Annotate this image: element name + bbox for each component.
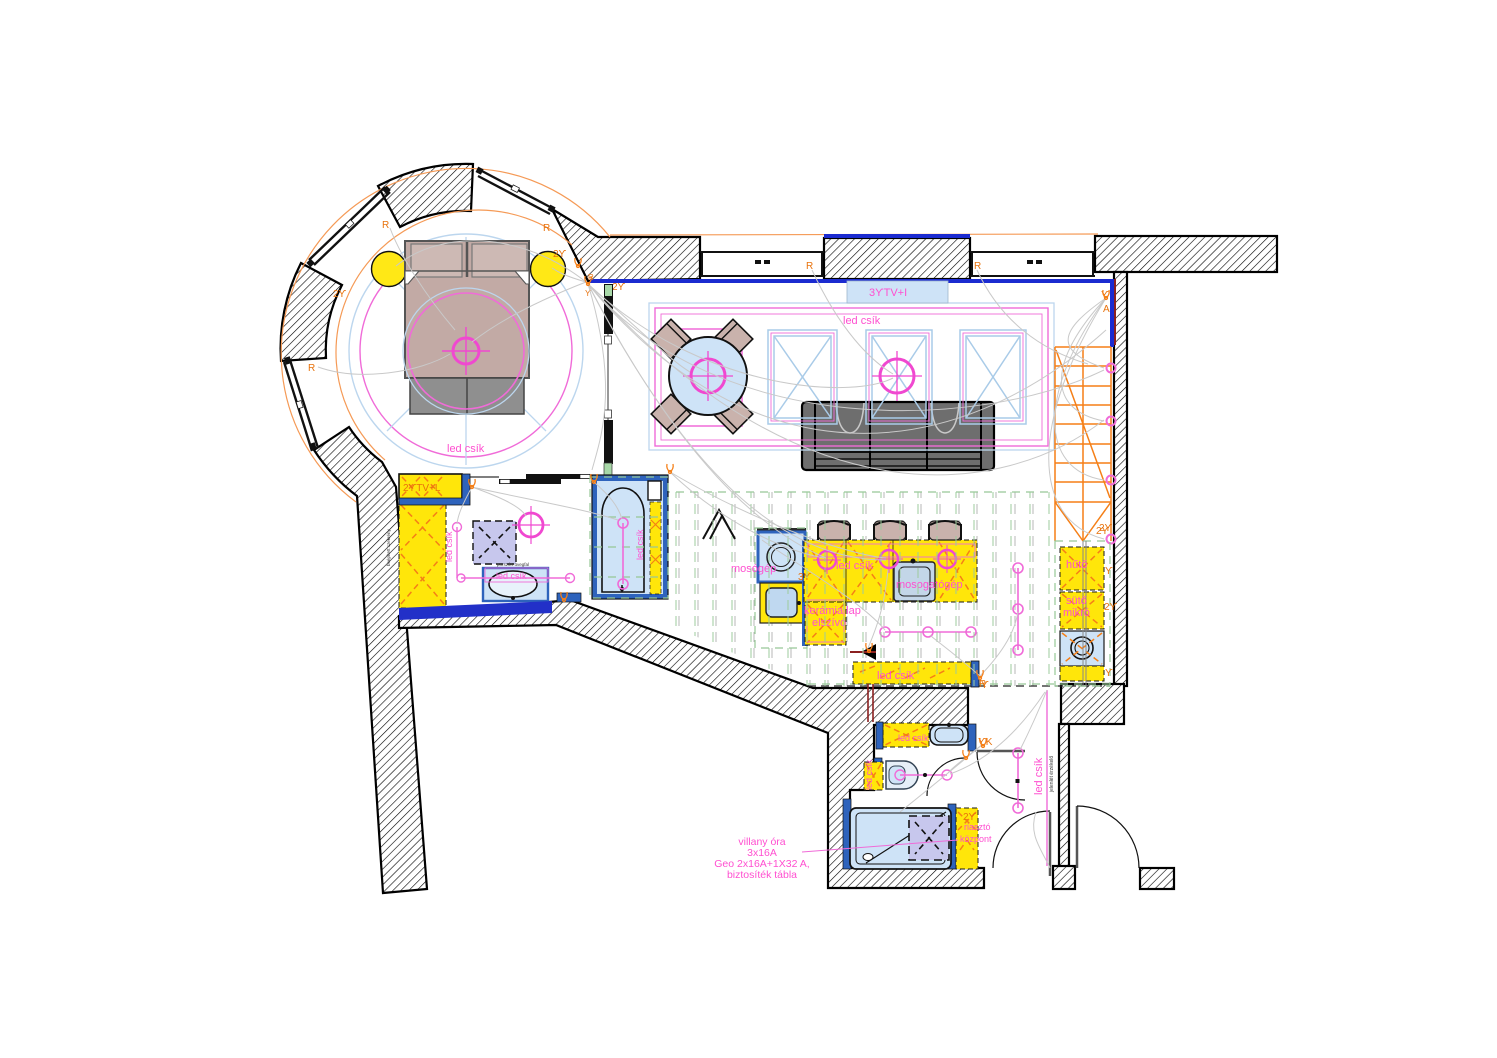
- svg-text:2ϒ: 2ϒ: [553, 249, 567, 260]
- svg-text:led csík: led csík: [843, 315, 881, 327]
- svg-text:R: R: [543, 223, 550, 234]
- svg-text:led csík: led csík: [864, 759, 874, 790]
- svg-text:porszórt üvegfal: porszórt üvegfal: [497, 562, 529, 567]
- svg-text:led csík: led csík: [1033, 757, 1045, 795]
- svg-text:A: A: [1103, 304, 1110, 315]
- svg-text:hűtő: hűtő: [1066, 559, 1087, 571]
- svg-text:3ϒ: 3ϒ: [798, 572, 812, 583]
- svg-text:2ϒ: 2ϒ: [1104, 602, 1118, 613]
- svg-text:led csík: led csík: [836, 560, 874, 572]
- svg-text:ϒ: ϒ: [981, 680, 989, 691]
- svg-text:beépített szekrény: beépített szekrény: [386, 528, 391, 566]
- svg-text:led csík: led csík: [496, 571, 527, 581]
- svg-text:R: R: [382, 220, 389, 231]
- svg-text:ϒ: ϒ: [1105, 566, 1113, 577]
- svg-text:R: R: [308, 363, 315, 374]
- svg-text:2ϒ: 2ϒ: [963, 812, 977, 823]
- svg-text:ϒ: ϒ: [1105, 668, 1113, 679]
- svg-text:kerámia lap: kerámia lap: [804, 605, 861, 617]
- svg-text:led csík: led csík: [635, 529, 645, 560]
- svg-text:biztosíték tábla: biztosíték tábla: [727, 869, 797, 881]
- svg-text:mikró: mikró: [1063, 607, 1090, 619]
- svg-text:riasztó: riasztó: [964, 822, 991, 832]
- svg-text:led csík: led csík: [877, 670, 915, 682]
- svg-text:2ϒTV+L: 2ϒTV+L: [403, 483, 441, 494]
- svg-text:led csík: led csík: [447, 443, 485, 455]
- svg-text:led csík: led csík: [898, 733, 929, 743]
- svg-text:központ: központ: [960, 834, 992, 844]
- svg-text:sütő: sütő: [1066, 595, 1087, 607]
- svg-text:2ϒ: 2ϒ: [1099, 523, 1113, 534]
- svg-text:3ϒTV+I: 3ϒTV+I: [869, 287, 907, 299]
- svg-text:2ϒ: 2ϒ: [612, 282, 626, 293]
- svg-text:jelenlét érzékelő: jelenlét érzékelő: [1049, 756, 1055, 793]
- svg-text:elszívó: elszívó: [812, 617, 846, 629]
- svg-text:2ϒ: 2ϒ: [333, 289, 347, 300]
- svg-text:led csík: led csík: [444, 531, 454, 562]
- svg-text:mosogatógép: mosogatógép: [896, 579, 963, 591]
